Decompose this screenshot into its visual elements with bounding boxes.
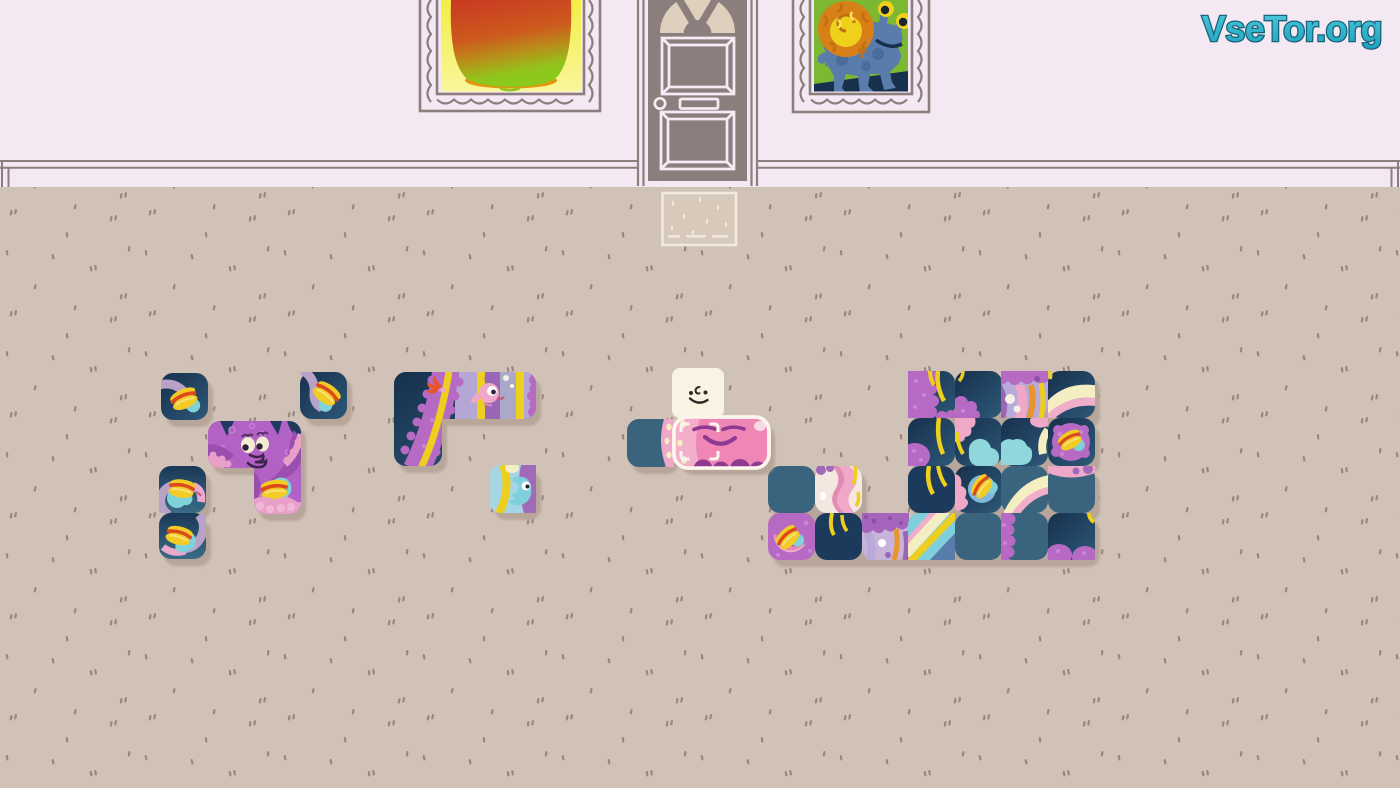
svg-text:VseTor.org: VseTor.org — [1202, 8, 1382, 49]
